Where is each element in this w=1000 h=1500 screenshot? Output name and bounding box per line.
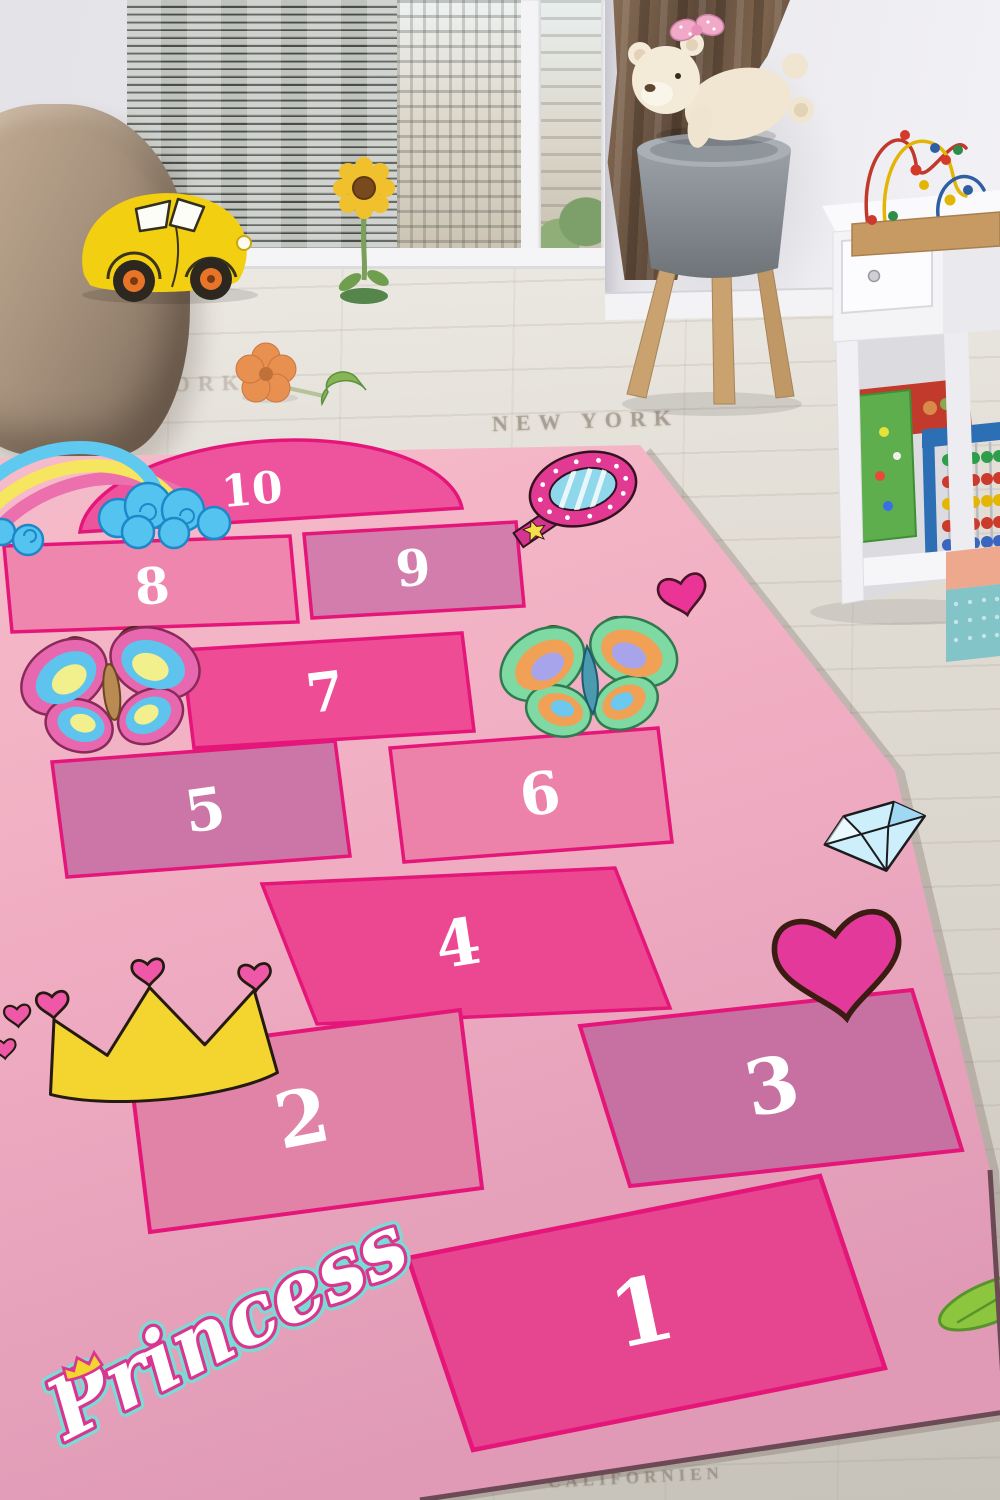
nursery-room-scene: NEW YORK NEW YORK CALIFORNIEN bbox=[0, 0, 1000, 1500]
side-table bbox=[810, 130, 1000, 662]
stool-leg bbox=[627, 268, 676, 398]
sunflower-head bbox=[333, 157, 395, 219]
teddy-nose bbox=[645, 84, 656, 92]
cell-number-9: 9 bbox=[393, 537, 433, 599]
stool-leg bbox=[757, 266, 794, 398]
sunflower-toy bbox=[333, 157, 395, 304]
stool-shadow bbox=[622, 392, 802, 416]
drawer-knob bbox=[869, 271, 880, 282]
car-plush-toy bbox=[82, 193, 258, 304]
flower-puzzle-toy bbox=[236, 343, 366, 404]
car-headlight bbox=[237, 236, 251, 250]
scene-graphics: Princess Princess Princess 10 8 9 7 5 6 … bbox=[0, 0, 1000, 1500]
cell-number-8: 8 bbox=[132, 555, 172, 617]
teddy-eye bbox=[675, 73, 681, 79]
cell-number-10: 10 bbox=[219, 462, 284, 518]
cell-number-7: 7 bbox=[302, 658, 347, 726]
storage-box-lid bbox=[946, 546, 1000, 590]
storage-box bbox=[946, 584, 1000, 662]
teddy-bear bbox=[628, 12, 814, 151]
stool-body bbox=[637, 150, 791, 278]
flower-stem-piece bbox=[322, 372, 366, 404]
stool-leg bbox=[712, 272, 735, 404]
stool bbox=[622, 133, 802, 416]
